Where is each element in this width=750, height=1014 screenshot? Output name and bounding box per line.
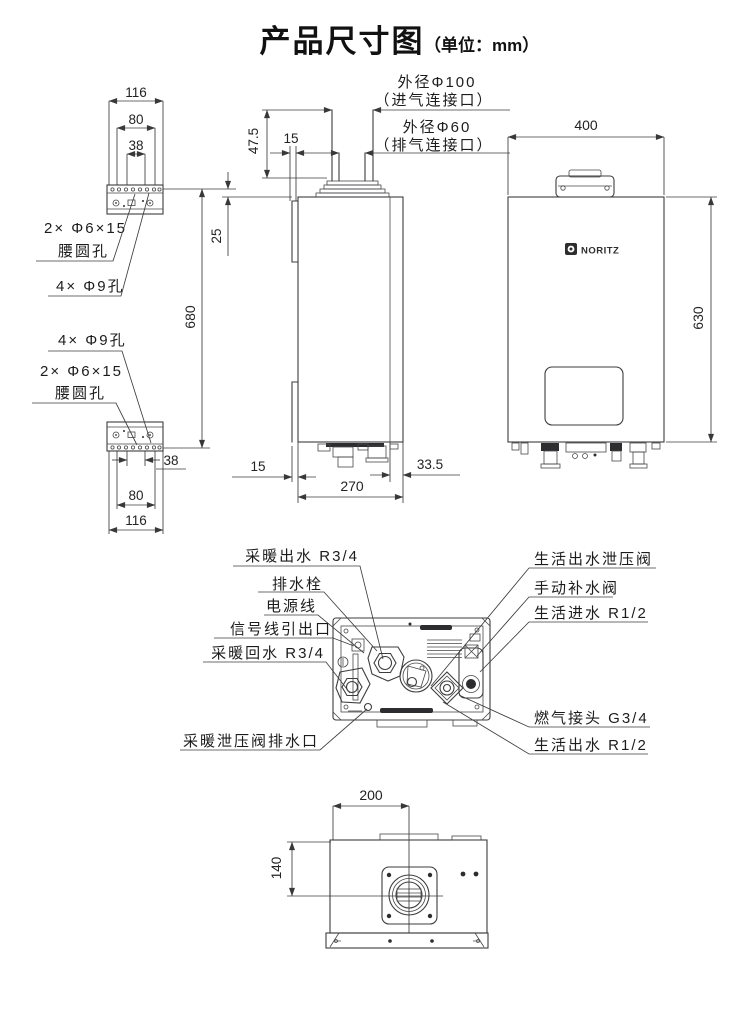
label-drain-plug: 排水栓: [272, 576, 323, 593]
dim-flue-center-x: 200: [359, 787, 383, 803]
dim-bracket-outer-bottom: 116: [125, 513, 147, 528]
dim-hole-span: 680: [182, 305, 198, 329]
noritz-logo-text: NORITZ: [581, 246, 619, 257]
dim-depth: 270: [340, 478, 364, 494]
round-hole-label-top: 4× Φ9孔: [56, 278, 125, 295]
dim-bottom-front-offset: 15: [250, 459, 265, 474]
label-power-cord: 电源线: [266, 598, 317, 615]
exhaust-diameter-label: 外径Φ60: [403, 119, 472, 136]
dim-rear-rail: 33.5: [417, 457, 443, 472]
slot-hole-label-top-line2: 腰圆孔: [58, 243, 109, 260]
product-dimension-sheet: 产品尺寸图 （单位：mm） 外径Φ100 （进气连接口） 外径Φ60 （排气连接…: [0, 0, 750, 1014]
dim-front-width: 400: [574, 117, 598, 133]
dim-hole-top-offset: 25: [209, 228, 224, 243]
label-dhw-relief-valve: 生活出水泄压阀: [534, 551, 653, 568]
dim-bracket-mid-top: 80: [128, 112, 143, 127]
dim-flue-side-offset: 15: [283, 131, 298, 146]
page-title-unit: （单位：mm）: [424, 35, 539, 55]
dim-bracket-inner-top: 38: [128, 138, 143, 153]
slot-hole-label-bottom-line1: 2× Φ6×15: [40, 363, 123, 380]
intake-diameter-label: 外径Φ100: [398, 74, 477, 91]
label-dhw-inlet: 生活进水 R1/2: [534, 605, 648, 622]
dim-front-height: 630: [690, 306, 706, 330]
page-title: 产品尺寸图: [260, 24, 425, 59]
dim-bracket-inner-bottom: 38: [163, 453, 178, 468]
noritz-logo: NORITZ: [565, 243, 619, 257]
label-relief-valve-drain: 采暖泄压阀排水口: [183, 733, 319, 750]
intake-port-label: （进气连接口）: [374, 92, 493, 109]
round-hole-label-bottom: 4× Φ9孔: [58, 332, 127, 349]
label-gas-connection: 燃气接头 G3/4: [534, 709, 649, 727]
label-dhw-outlet: 生活出水 R1/2: [534, 737, 648, 754]
label-manual-fill-valve: 手动补水阀: [534, 580, 619, 597]
dim-collar-height: 47.5: [246, 128, 261, 154]
slot-hole-label-bottom-line2: 腰圆孔: [55, 385, 106, 402]
dimension-drawing: 产品尺寸图 （单位：mm） 外径Φ100 （进气连接口） 外径Φ60 （排气连接…: [0, 0, 750, 1014]
label-signal-wire-outlet: 信号线引出口: [230, 621, 332, 638]
dim-flue-center-y: 140: [269, 857, 284, 880]
exhaust-port-label: （排气连接口）: [374, 137, 493, 154]
dim-bracket-mid-bottom: 80: [128, 488, 143, 503]
dim-bracket-outer-top: 116: [125, 85, 147, 100]
label-heating-return: 采暖回水 R3/4: [211, 645, 325, 662]
label-heating-outlet: 采暖出水 R3/4: [245, 548, 359, 565]
slot-hole-label-top-line1: 2× Φ6×15: [44, 220, 127, 237]
